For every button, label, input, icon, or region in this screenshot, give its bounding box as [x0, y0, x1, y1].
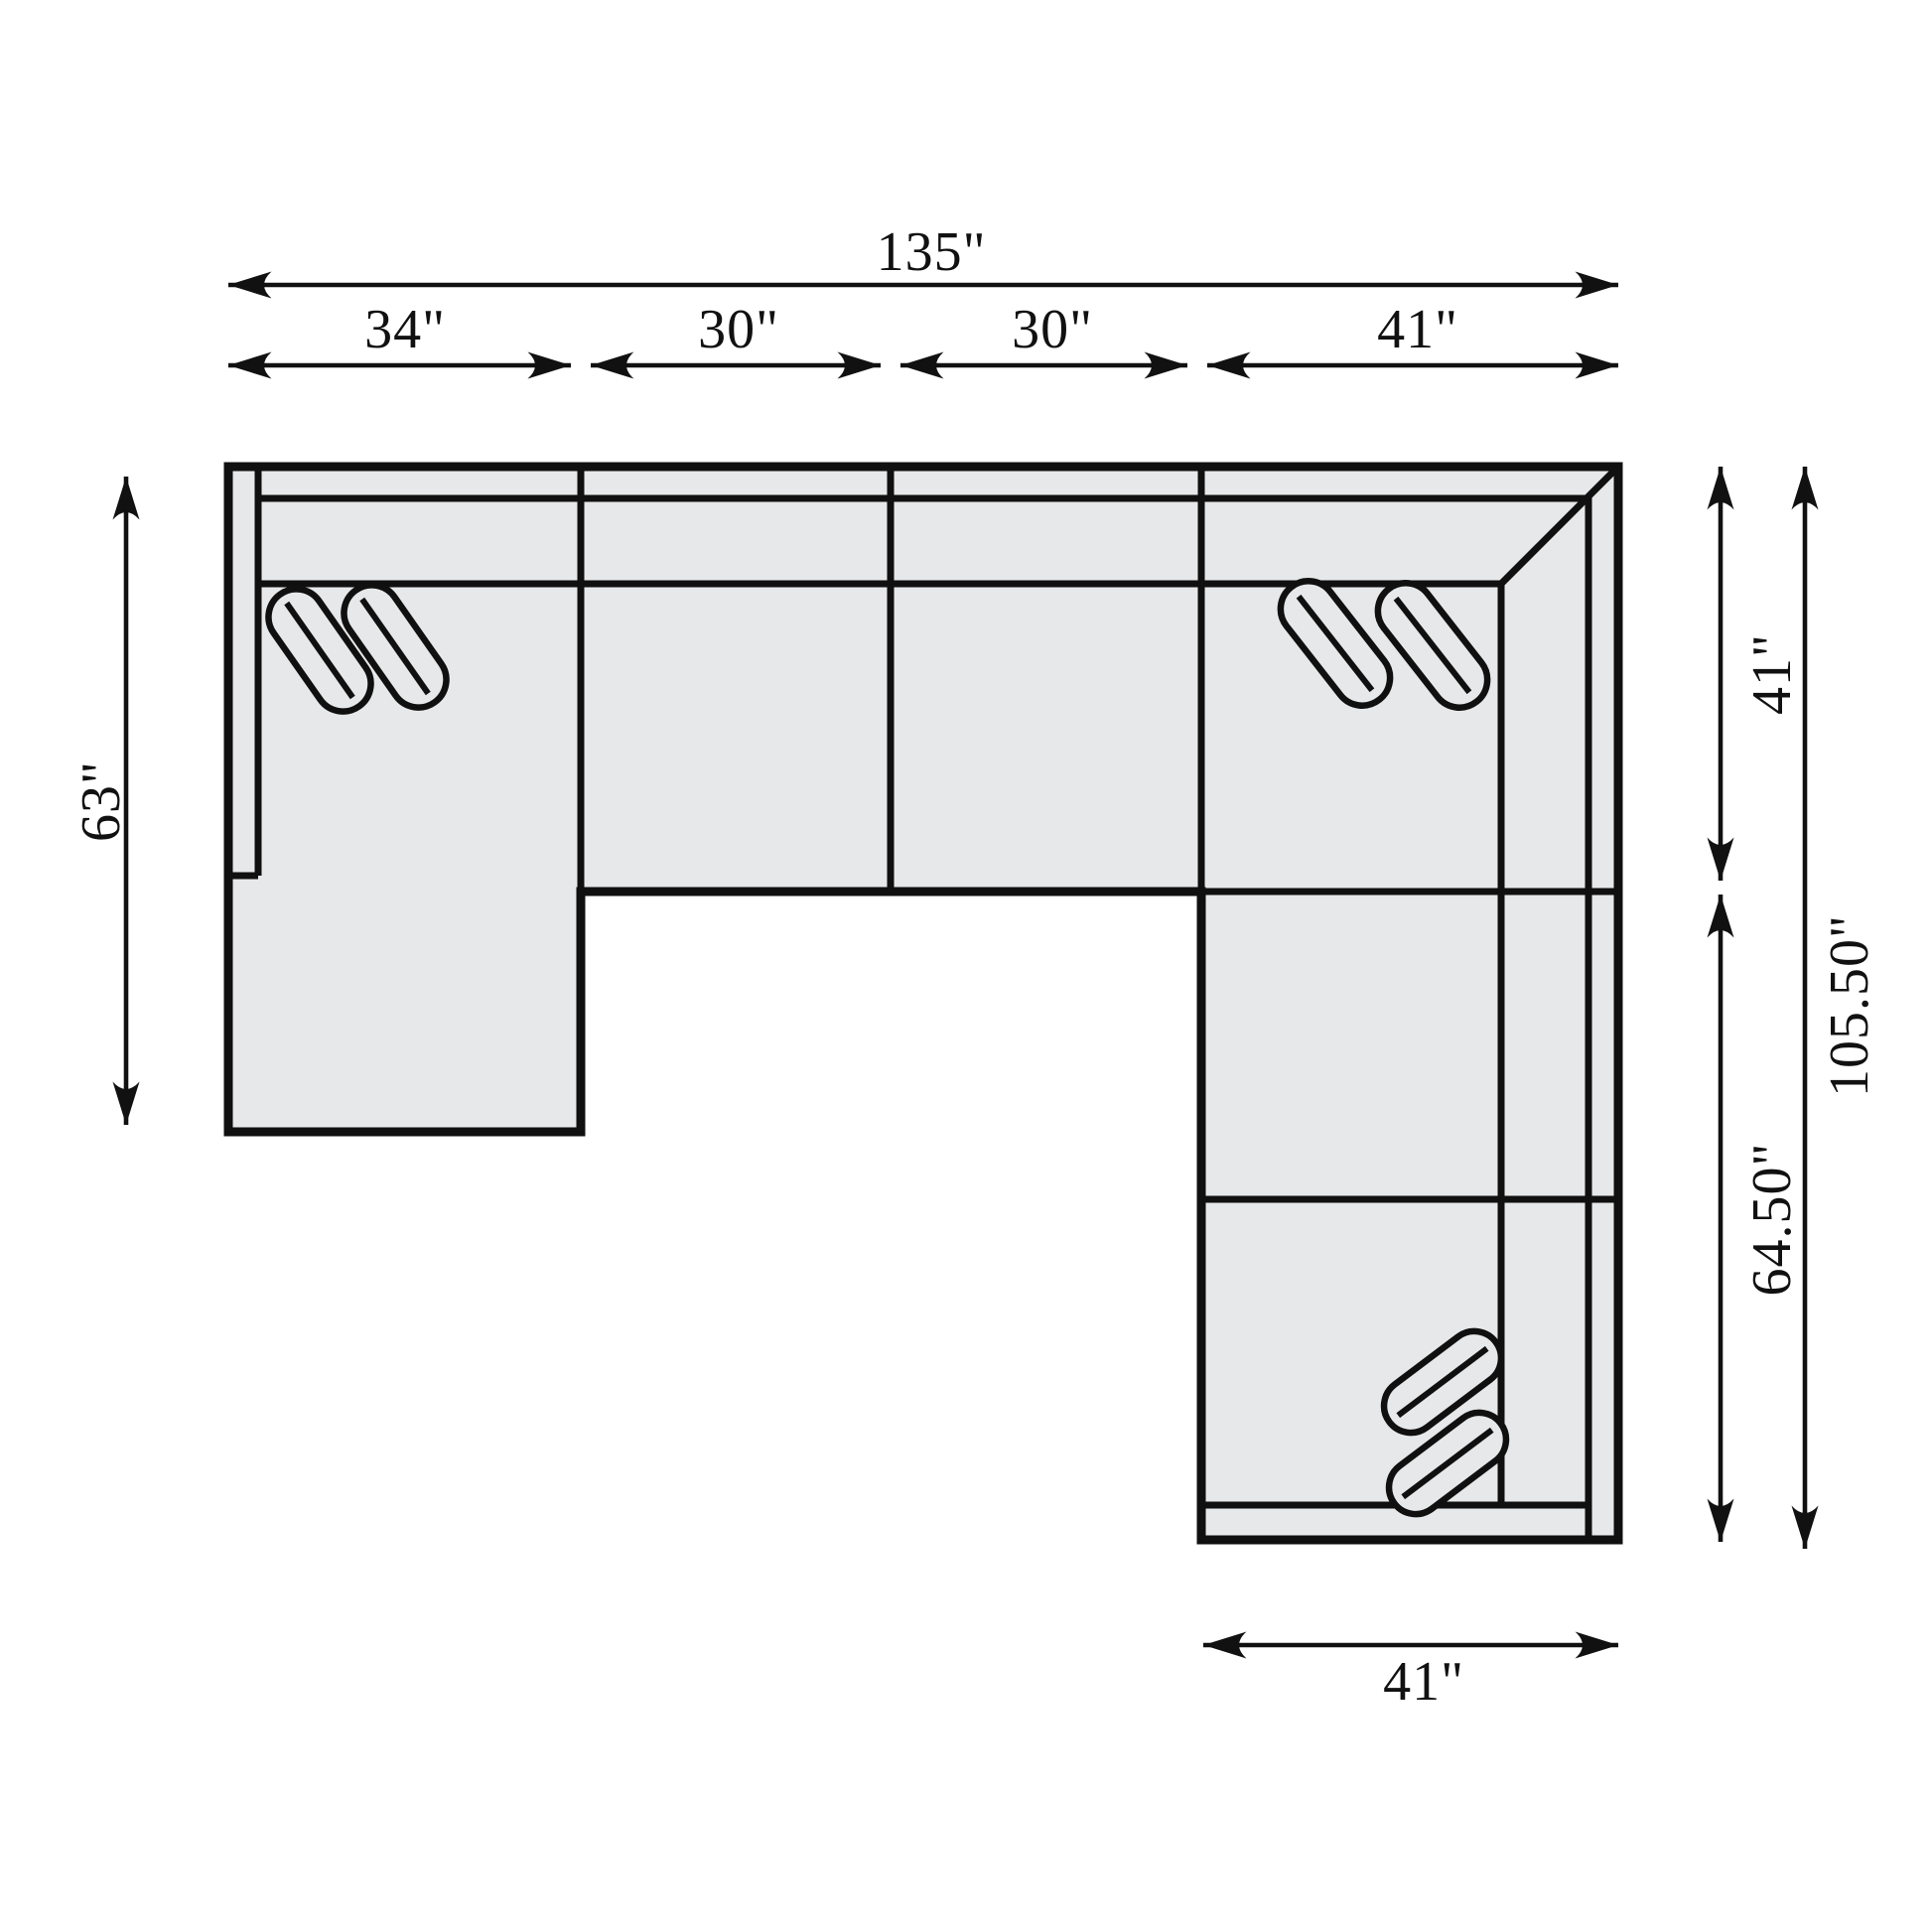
- dim-label-right-lower: 64.50": [1741, 1143, 1803, 1297]
- dim-right-lower: 64.50": [1721, 895, 1803, 1542]
- dim-label-segment-3: 30": [1012, 299, 1093, 360]
- dim-bottom-width: 41": [1203, 1645, 1618, 1713]
- sofa-dimension-diagram: 135" 34" 30" 30" 41" 63" 41": [0, 0, 1932, 1932]
- dim-label-bottom-width: 41": [1383, 1651, 1464, 1713]
- dim-label-overall-width: 135": [877, 221, 987, 283]
- dim-label-segment-1: 34": [364, 299, 446, 360]
- dim-segment-3: 30": [900, 299, 1187, 365]
- dim-segment-1: 34": [228, 299, 571, 365]
- dim-label-left-height: 63": [70, 760, 132, 842]
- dim-label-segment-2: 30": [698, 299, 779, 360]
- dim-segment-4: 41": [1207, 299, 1618, 365]
- sofa-plan: [228, 467, 1618, 1540]
- dim-label-segment-4: 41": [1377, 299, 1458, 360]
- dim-segment-2: 30": [591, 299, 881, 365]
- dim-right-upper: 41": [1721, 467, 1803, 881]
- dim-label-right-upper: 41": [1741, 633, 1803, 715]
- dim-left-height: 63": [70, 477, 132, 1125]
- dim-right-total: 105.50": [1805, 467, 1880, 1549]
- dim-label-right-total: 105.50": [1819, 914, 1880, 1097]
- dim-overall-width: 135": [228, 221, 1618, 285]
- diagram-canvas: 135" 34" 30" 30" 41" 63" 41": [0, 0, 1932, 1932]
